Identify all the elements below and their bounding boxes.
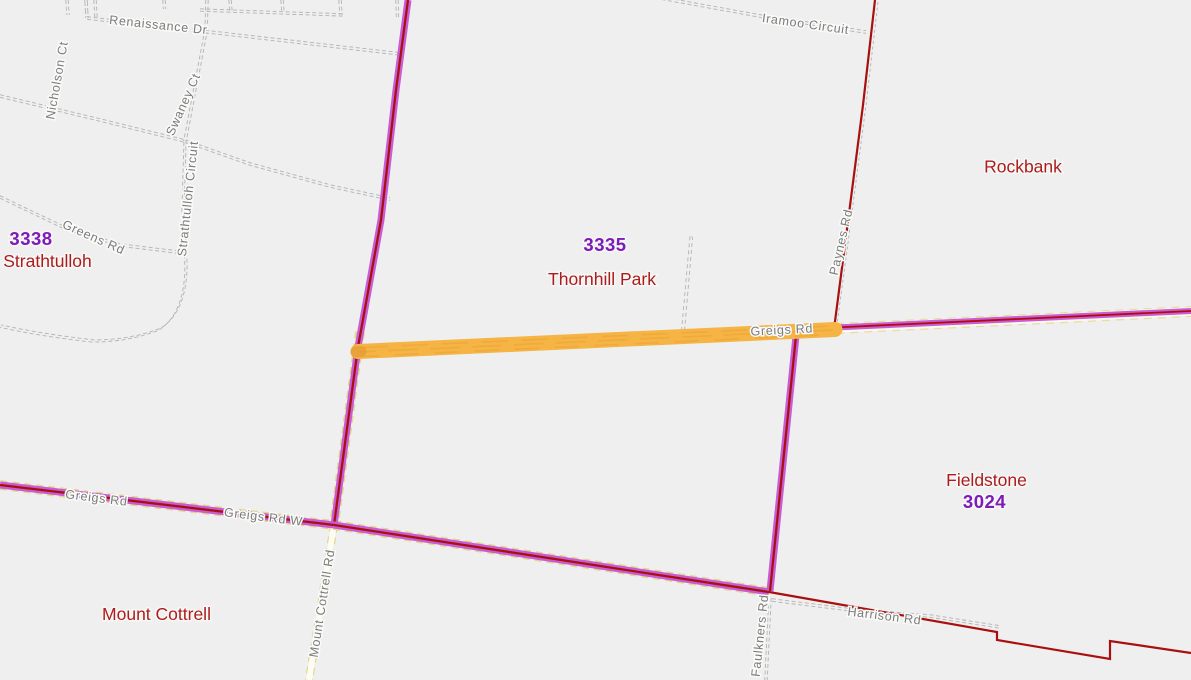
svg-text:Thornhill Park: Thornhill Park	[548, 269, 656, 289]
svg-text:3024: 3024	[963, 491, 1006, 512]
svg-text:3335: 3335	[583, 234, 626, 255]
svg-text:3338: 3338	[9, 228, 52, 249]
svg-text:Mount Cottrell: Mount Cottrell	[102, 604, 211, 624]
svg-text:Strathtulloh: Strathtulloh	[3, 251, 92, 271]
svg-text:Fieldstone: Fieldstone	[946, 470, 1027, 490]
svg-text:Rockbank: Rockbank	[984, 157, 1062, 177]
